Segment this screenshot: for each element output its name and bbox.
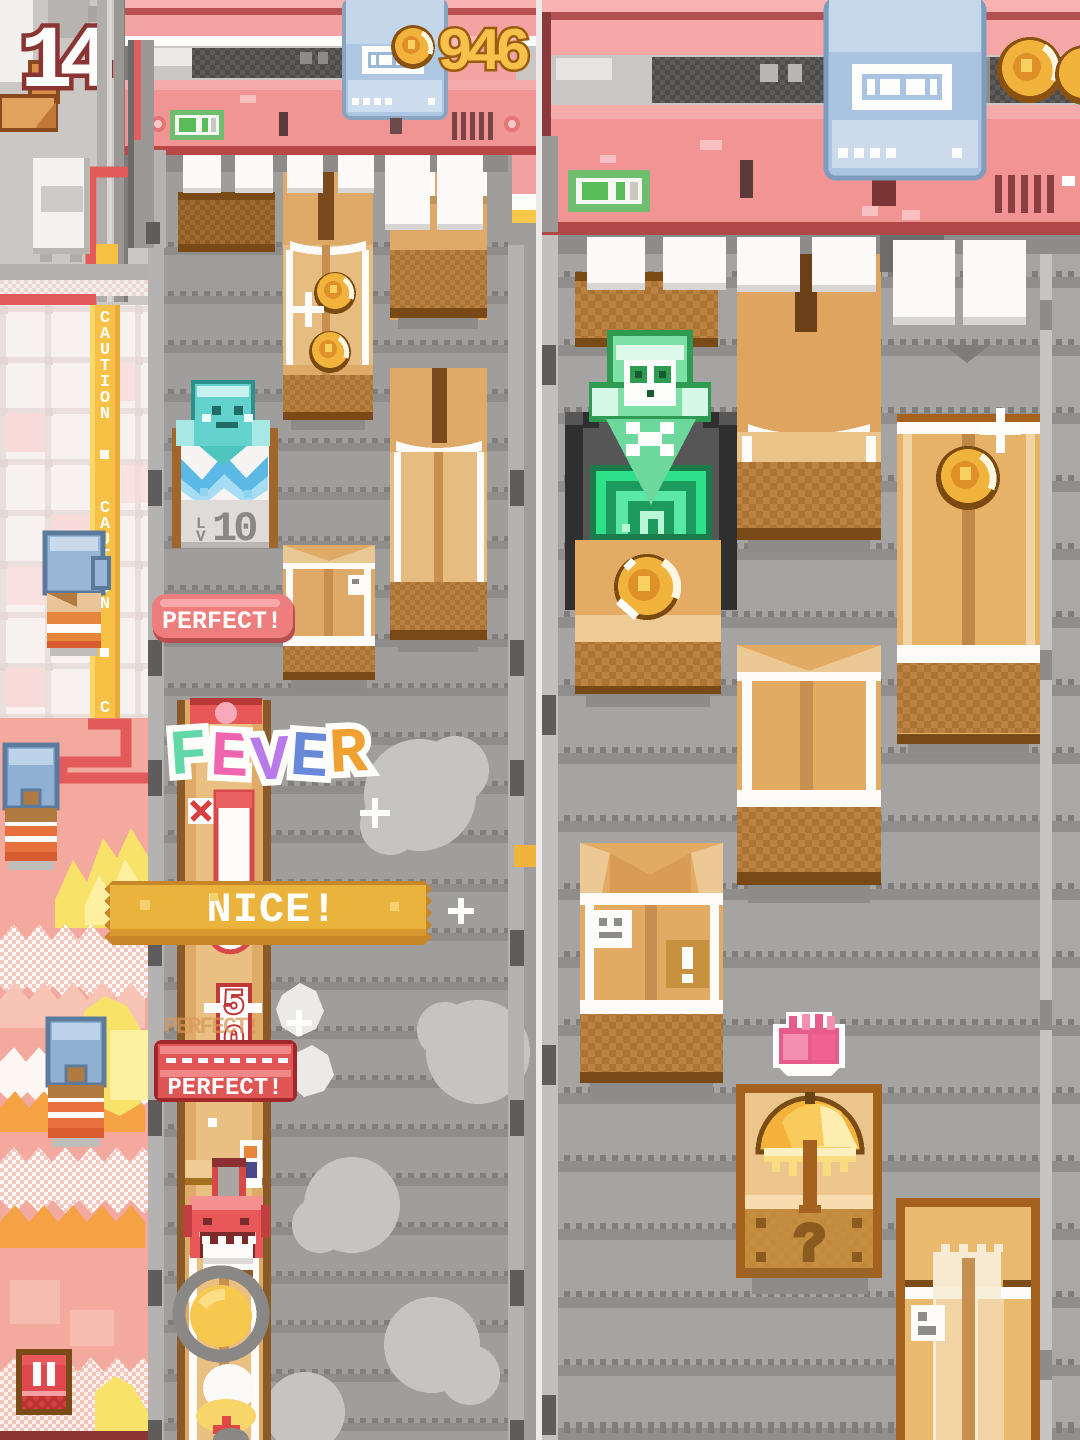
svg-text:R: R bbox=[327, 718, 370, 792]
svg-text:N: N bbox=[100, 595, 110, 614]
svg-text:946: 946 bbox=[437, 20, 528, 88]
svg-text:PERFECT!: PERFECT! bbox=[164, 1014, 258, 1040]
svg-text:PERFECT!: PERFECT! bbox=[162, 607, 282, 636]
svg-text:N: N bbox=[100, 405, 110, 424]
svg-text:F: F bbox=[167, 720, 210, 795]
svg-text:?: ? bbox=[794, 1216, 826, 1277]
svg-text:E: E bbox=[208, 722, 250, 796]
svg-text:NICE!: NICE! bbox=[206, 886, 337, 934]
svg-text:PERFECT!: PERFECT! bbox=[167, 1075, 282, 1102]
svg-text:V: V bbox=[249, 726, 292, 800]
svg-text:E: E bbox=[288, 722, 331, 797]
svg-text:14: 14 bbox=[20, 14, 110, 113]
svg-text:C: C bbox=[100, 699, 110, 718]
